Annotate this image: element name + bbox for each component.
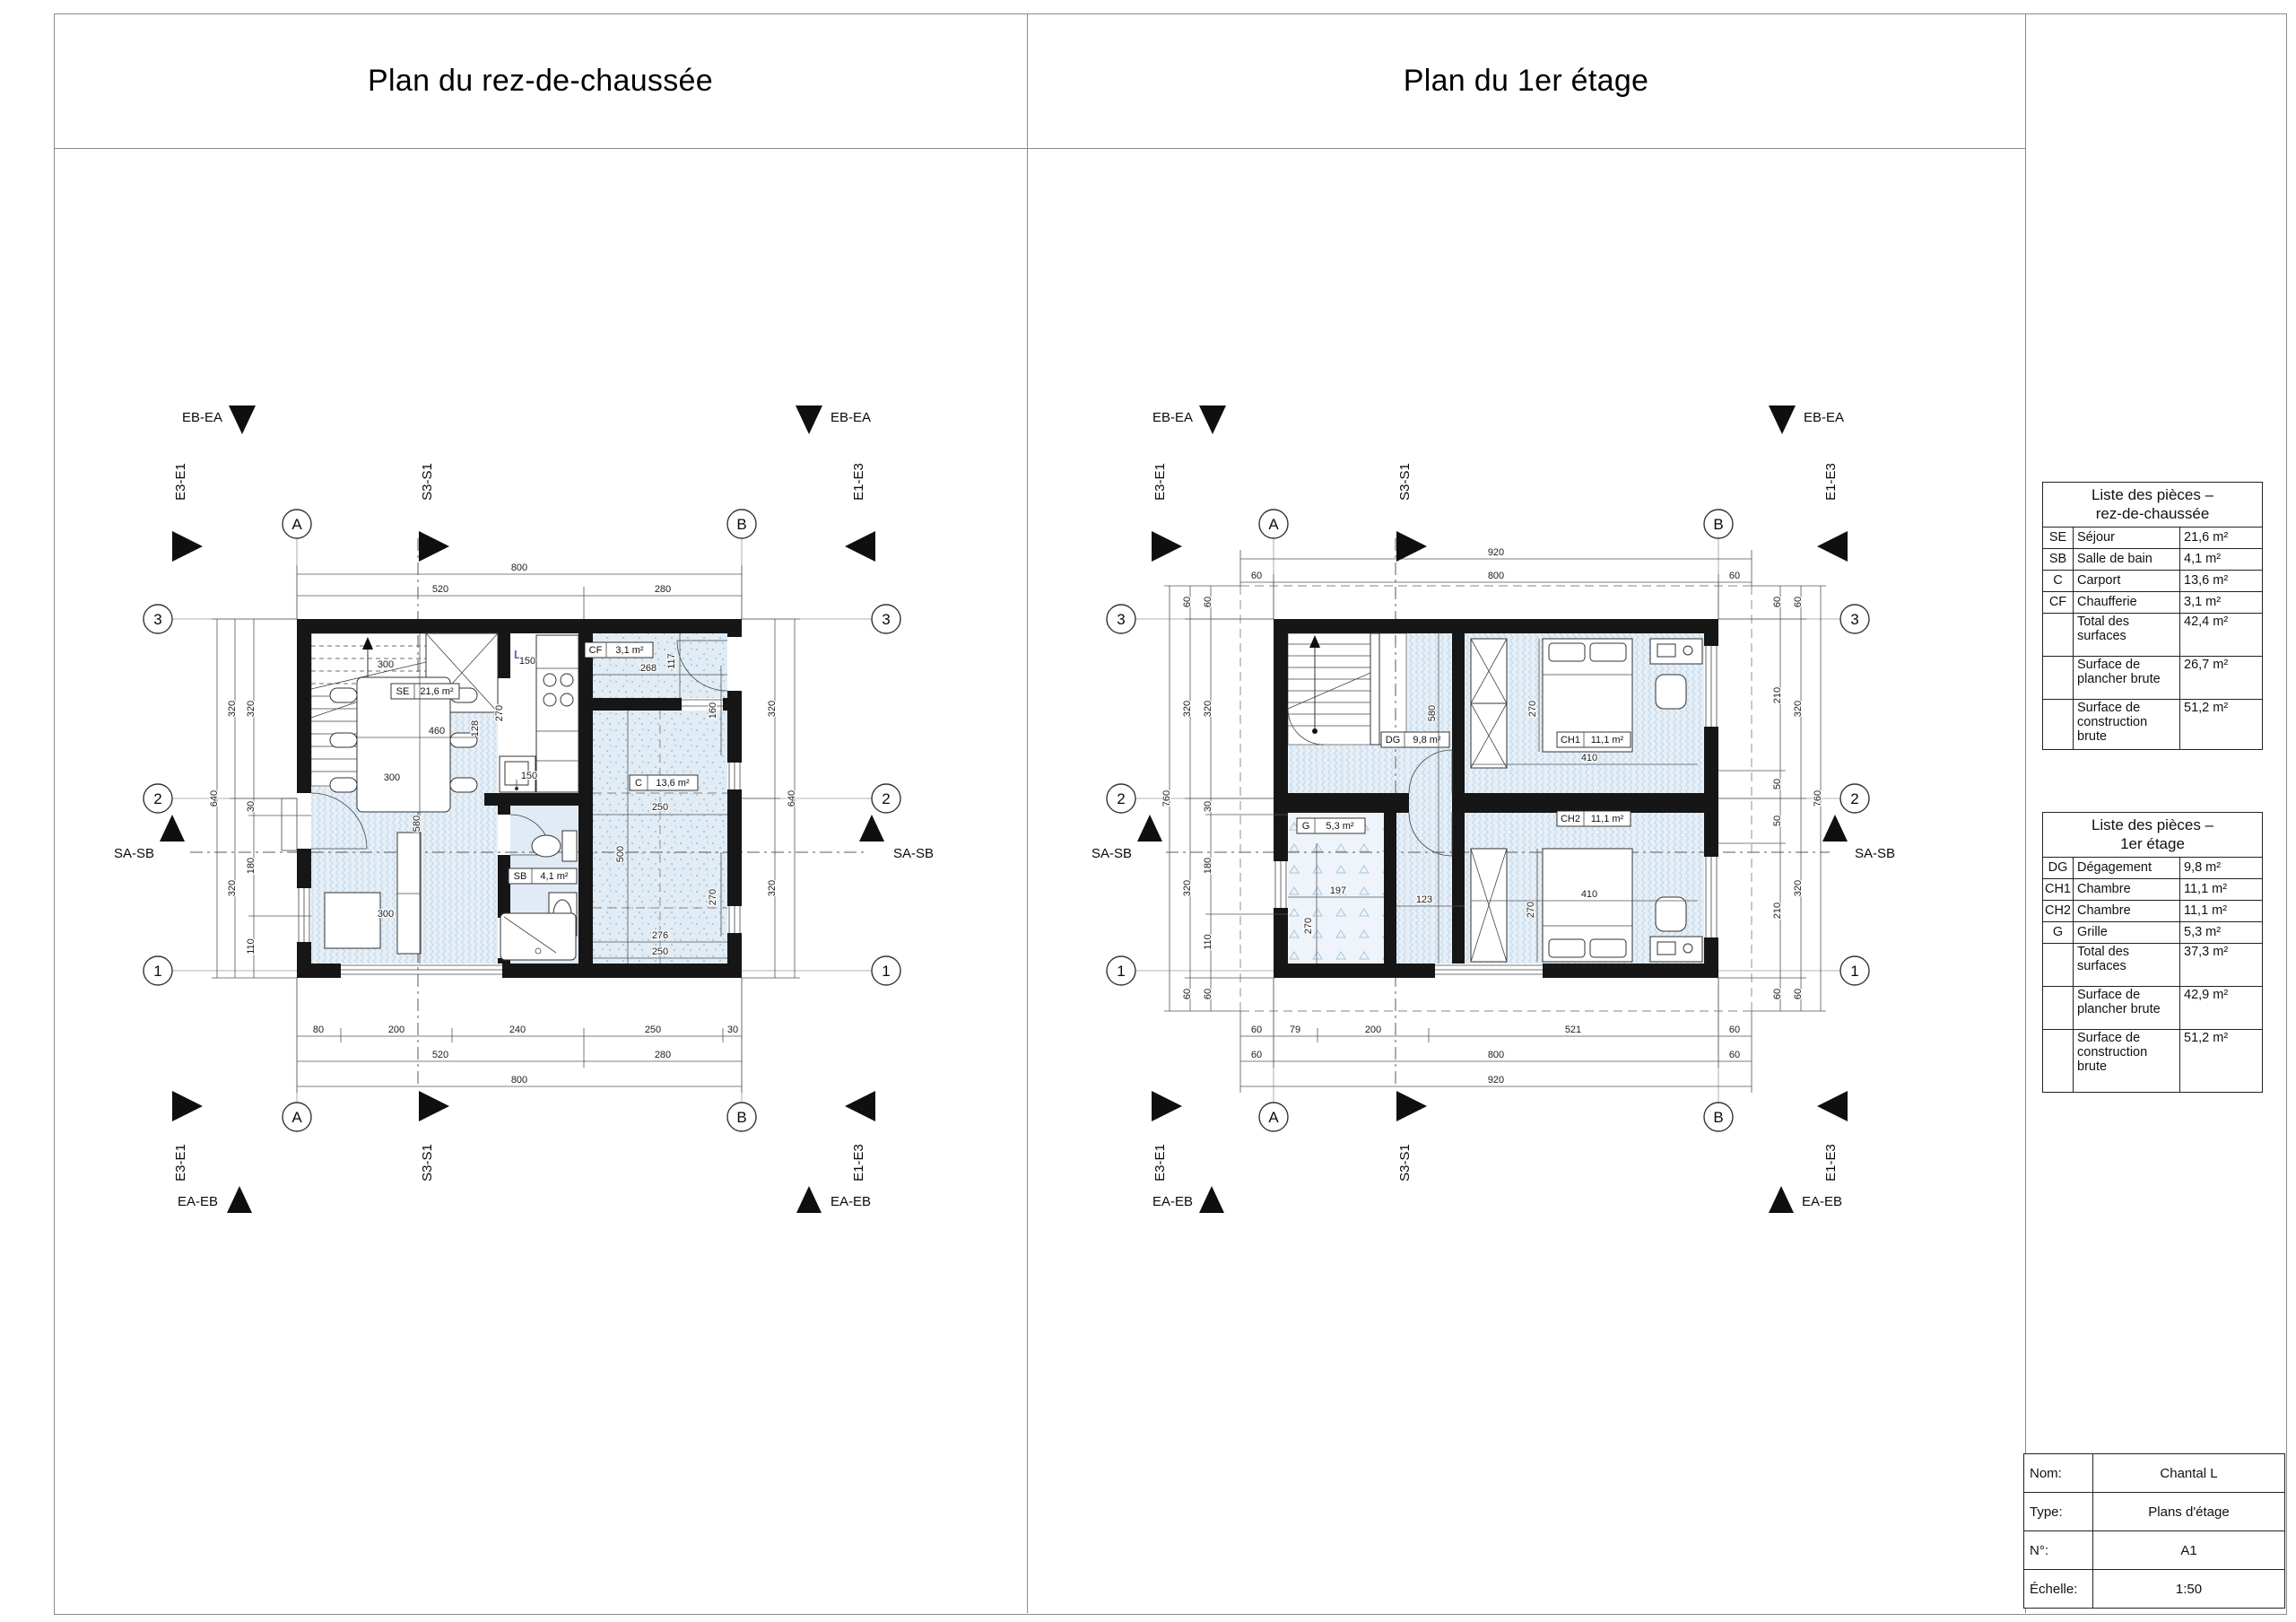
svg-text:410: 410: [1581, 889, 1597, 900]
svg-text:460: 460: [429, 726, 445, 737]
grid-bubble-2-left: 2: [1107, 784, 1135, 813]
grid-bubble-1-right: 1: [1840, 956, 1869, 985]
svg-text:S3-S1: S3-S1: [1397, 1144, 1413, 1182]
svg-text:CF: CF: [589, 645, 603, 656]
svg-text:250: 250: [652, 802, 668, 813]
svg-text:240: 240: [509, 1025, 526, 1035]
section-triangle-icon: [227, 1186, 252, 1213]
room-label-dg: DG 9,8 m²: [1381, 732, 1449, 747]
grid-bubble-1-right: 1: [872, 956, 900, 985]
svg-text:520: 520: [432, 1050, 448, 1060]
table-row: CH1Chambre11,1 m²: [2043, 878, 2263, 900]
svg-text:79: 79: [1290, 1025, 1300, 1035]
table-row: Total des surfaces42,4 m²: [2043, 613, 2263, 656]
svg-text:B: B: [1713, 516, 1723, 533]
table-row: SBSalle de bain4,1 m²: [2043, 548, 2263, 570]
svg-text:5,3 m²: 5,3 m²: [1326, 821, 1354, 832]
svg-text:270: 270: [1527, 701, 1538, 717]
svg-text:EA-EB: EA-EB: [831, 1194, 871, 1209]
grid-bubble-b-bottom: B: [727, 1103, 756, 1131]
grid-bubble-b-top: B: [727, 510, 756, 538]
svg-text:80: 80: [313, 1025, 324, 1035]
table-row: GGrille5,3 m²: [2043, 921, 2263, 943]
section-triangle-icon: [229, 405, 256, 434]
svg-text:250: 250: [645, 1025, 661, 1035]
section-triangle-icon: [1199, 405, 1226, 434]
svg-text:60: 60: [1251, 571, 1262, 581]
svg-text:1: 1: [1117, 963, 1125, 980]
table-row: Surface de plancher brute42,9 m²: [2043, 986, 2263, 1029]
svg-text:210: 210: [1772, 687, 1783, 703]
svg-text:EB-EA: EB-EA: [182, 410, 222, 425]
section-triangle-icon: [172, 531, 203, 562]
svg-text:21,6 m²: 21,6 m²: [420, 686, 454, 697]
svg-text:3: 3: [882, 611, 890, 628]
svg-text:C: C: [635, 778, 642, 789]
svg-text:S3-S1: S3-S1: [420, 1144, 435, 1182]
grid-bubble-3-right: 3: [872, 605, 900, 633]
svg-text:60: 60: [1251, 1050, 1262, 1060]
bathtub-icon: [500, 913, 576, 960]
svg-text:580: 580: [412, 815, 422, 832]
grid-bubble-3-right: 3: [1840, 605, 1869, 633]
svg-text:60: 60: [1251, 1025, 1262, 1035]
section-triangle-icon: [1396, 1091, 1427, 1121]
svg-text:60: 60: [1772, 989, 1783, 999]
svg-text:520: 520: [432, 584, 448, 595]
svg-text:SA-SB: SA-SB: [114, 846, 154, 861]
svg-text:760: 760: [1813, 790, 1823, 807]
svg-text:60: 60: [1772, 597, 1783, 607]
svg-text:9,8 m²: 9,8 m²: [1413, 735, 1441, 746]
svg-text:A: A: [291, 1109, 302, 1126]
svg-text:11,1 m²: 11,1 m²: [1591, 735, 1624, 746]
section-triangle-icon: [1152, 531, 1182, 562]
svg-text:117: 117: [666, 653, 677, 669]
section-triangle-icon: [796, 1186, 822, 1213]
section-triangle-icon: [1769, 1186, 1794, 1213]
svg-text:920: 920: [1488, 547, 1504, 558]
title-block-row: Nom:Chantal L: [2024, 1454, 2285, 1493]
svg-text:250: 250: [652, 946, 668, 957]
svg-text:320: 320: [227, 880, 238, 896]
svg-text:3,1 m²: 3,1 m²: [615, 645, 644, 656]
svg-text:180: 180: [246, 858, 257, 874]
svg-text:320: 320: [246, 701, 257, 717]
sideboard: [397, 833, 421, 954]
svg-text:EB-EA: EB-EA: [1804, 410, 1844, 425]
svg-text:E3-E1: E3-E1: [173, 1144, 188, 1182]
section-triangle-icon: [845, 531, 875, 562]
svg-text:300: 300: [378, 659, 394, 670]
svg-text:1: 1: [882, 963, 890, 980]
table-row: CCarport13,6 m²: [2043, 570, 2263, 591]
svg-text:DG: DG: [1386, 735, 1401, 746]
svg-text:521: 521: [1565, 1025, 1581, 1035]
svg-text:3: 3: [1850, 611, 1858, 628]
floor-plans-canvas: SE 21,6 m² SB 4,1 m² C 13,6 m² CF 3,1 m²: [0, 0, 2296, 1622]
svg-text:2: 2: [1117, 790, 1125, 807]
room-label-c: C 13,6 m²: [630, 775, 698, 790]
svg-text:410: 410: [1581, 753, 1597, 763]
grid-bubble-b-top: B: [1704, 510, 1733, 538]
svg-text:320: 320: [1203, 701, 1213, 717]
svg-text:320: 320: [1182, 880, 1193, 896]
svg-text:2: 2: [153, 790, 161, 807]
svg-text:SE: SE: [396, 686, 410, 697]
svg-text:800: 800: [511, 562, 527, 573]
svg-text:E1-E3: E1-E3: [1823, 463, 1839, 501]
svg-text:EA-EB: EA-EB: [178, 1194, 218, 1209]
table-title: Liste des pièces –rez-de-chaussée: [2043, 483, 2263, 528]
room-label-ch1: CH1 11,1 m²: [1557, 732, 1631, 747]
plan-rdc: SE 21,6 m² SB 4,1 m² C 13,6 m² CF 3,1 m²: [114, 405, 934, 1213]
svg-text:E1-E3: E1-E3: [1823, 1144, 1839, 1182]
svg-text:128: 128: [470, 720, 481, 737]
svg-text:180: 180: [1203, 858, 1213, 874]
bed-ch2: [1543, 849, 1632, 962]
svg-text:60: 60: [1729, 571, 1740, 581]
svg-text:60: 60: [1182, 989, 1193, 999]
section-triangle-icon: [796, 405, 822, 434]
svg-text:800: 800: [1488, 1050, 1504, 1060]
rdc-kitchen: [500, 635, 578, 792]
svg-text:SA-SB: SA-SB: [1855, 846, 1895, 861]
section-triangle-icon: [1199, 1186, 1224, 1213]
title-block-row: Type:Plans d'étage: [2024, 1493, 2285, 1531]
svg-text:E3-E1: E3-E1: [1152, 1144, 1168, 1182]
svg-text:640: 640: [209, 790, 220, 807]
grid-bubble-2-left: 2: [143, 784, 172, 813]
svg-text:30: 30: [1203, 801, 1213, 812]
svg-text:CH2: CH2: [1561, 814, 1580, 824]
svg-text:2: 2: [1850, 790, 1858, 807]
svg-text:A: A: [1268, 1109, 1279, 1126]
svg-text:197: 197: [1330, 885, 1346, 896]
svg-text:EA-EB: EA-EB: [1152, 1194, 1193, 1209]
coffee-table: [325, 893, 380, 948]
svg-text:110: 110: [1203, 934, 1213, 950]
svg-text:268: 268: [640, 663, 657, 674]
svg-text:3: 3: [153, 611, 161, 628]
svg-text:640: 640: [787, 790, 797, 807]
svg-text:E1-E3: E1-E3: [851, 463, 866, 501]
svg-text:60: 60: [1793, 989, 1804, 999]
svg-text:110: 110: [246, 938, 257, 955]
svg-text:320: 320: [1793, 880, 1804, 896]
svg-text:270: 270: [494, 705, 505, 721]
grid-bubble-2-right: 2: [1840, 784, 1869, 813]
title-block-row: N°:A1: [2024, 1531, 2285, 1570]
section-triangle-icon: [1822, 815, 1848, 842]
svg-text:210: 210: [1772, 903, 1783, 919]
svg-text:1: 1: [1850, 963, 1858, 980]
svg-text:B: B: [736, 1109, 746, 1126]
section-triangle-icon: [859, 815, 884, 842]
svg-text:B: B: [736, 516, 746, 533]
svg-text:30: 30: [727, 1025, 738, 1035]
svg-text:270: 270: [1526, 902, 1536, 918]
grid-bubble-1-left: 1: [143, 956, 172, 985]
svg-text:60: 60: [1203, 597, 1213, 607]
room-label-cf: CF 3,1 m²: [585, 642, 653, 658]
svg-text:150: 150: [519, 656, 535, 667]
grid-bubble-3-left: 3: [143, 605, 172, 633]
svg-text:A: A: [1268, 516, 1279, 533]
svg-text:13,6 m²: 13,6 m²: [656, 778, 690, 789]
svg-text:320: 320: [767, 701, 778, 717]
room-label-se: SE 21,6 m²: [391, 684, 459, 699]
svg-text:150: 150: [521, 771, 537, 781]
grid-bubble-3-left: 3: [1107, 605, 1135, 633]
section-triangle-icon: [1137, 815, 1162, 842]
grid-bubble-1-left: 1: [1107, 956, 1135, 985]
svg-text:320: 320: [1793, 701, 1804, 717]
svg-text:A: A: [291, 516, 302, 533]
plan-etage: DG 9,8 m² CH1 11,1 m² CH2 11,1 m² G 5,3 …: [1091, 405, 1895, 1213]
grid-bubble-b-bottom: B: [1704, 1103, 1733, 1131]
svg-text:320: 320: [767, 880, 778, 896]
room-list-table-etage: Liste des pièces –1er étage DGDégagement…: [2042, 812, 2263, 1093]
svg-text:300: 300: [384, 772, 400, 783]
svg-text:30: 30: [246, 801, 257, 812]
svg-text:CH1: CH1: [1561, 735, 1580, 746]
svg-text:EB-EA: EB-EA: [1152, 410, 1193, 425]
table-row: CH2Chambre11,1 m²: [2043, 900, 2263, 921]
svg-text:E3-E1: E3-E1: [173, 463, 188, 501]
svg-text:320: 320: [1182, 701, 1193, 717]
svg-text:EA-EB: EA-EB: [1802, 1194, 1842, 1209]
room-list-table-rdc: Liste des pièces –rez-de-chaussée SESéjo…: [2042, 482, 2263, 750]
grid-bubble-a-top: A: [283, 510, 311, 538]
table-row: CFChaufferie3,1 m²: [2043, 591, 2263, 613]
svg-text:270: 270: [1303, 918, 1314, 934]
svg-text:280: 280: [655, 1050, 671, 1060]
section-triangle-icon: [845, 1091, 875, 1121]
grid-bubble-2-right: 2: [872, 784, 900, 813]
svg-text:300: 300: [378, 909, 394, 920]
chair-ch1: [1656, 675, 1686, 709]
table-row: Surface de construction brute51,2 m²: [2043, 699, 2263, 749]
svg-text:60: 60: [1182, 597, 1193, 607]
room-label-ch2: CH2 11,1 m²: [1557, 811, 1631, 826]
svg-text:E3-E1: E3-E1: [1152, 463, 1168, 501]
section-triangle-icon: [1817, 1091, 1848, 1121]
svg-text:60: 60: [1729, 1025, 1740, 1035]
chair-ch2: [1656, 897, 1686, 931]
svg-text:123: 123: [1416, 894, 1432, 905]
title-block-row: Échelle:1:50: [2024, 1570, 2285, 1609]
svg-text:SA-SB: SA-SB: [893, 846, 934, 861]
svg-text:580: 580: [1427, 705, 1438, 721]
table-row: DGDégagement9,8 m²: [2043, 857, 2263, 878]
section-triangle-icon: [1817, 531, 1848, 562]
svg-text:SA-SB: SA-SB: [1091, 846, 1132, 861]
svg-text:60: 60: [1793, 597, 1804, 607]
svg-text:800: 800: [1488, 571, 1504, 581]
svg-text:60: 60: [1729, 1050, 1740, 1060]
svg-text:60: 60: [1203, 989, 1213, 999]
section-triangle-icon: [419, 1091, 449, 1121]
svg-text:2: 2: [882, 790, 890, 807]
svg-text:160: 160: [708, 702, 718, 719]
svg-text:SB: SB: [514, 871, 527, 882]
table-row: Total des surfaces37,3 m²: [2043, 943, 2263, 986]
svg-text:276: 276: [652, 930, 668, 941]
table-row: SESéjour21,6 m²: [2043, 527, 2263, 548]
section-triangle-icon: [1769, 405, 1796, 434]
svg-text:S3-S1: S3-S1: [1397, 463, 1413, 501]
svg-text:800: 800: [511, 1075, 527, 1086]
svg-text:11,1 m²: 11,1 m²: [1591, 814, 1624, 824]
svg-text:50: 50: [1772, 815, 1783, 826]
grid-bubble-a-bottom: A: [1259, 1103, 1288, 1131]
title-block: Nom:Chantal L Type:Plans d'étage N°:A1 É…: [2023, 1453, 2285, 1609]
table-title: Liste des pièces –1er étage: [2043, 813, 2263, 858]
section-triangle-icon: [1396, 531, 1427, 562]
stair-floor: [1288, 633, 1406, 745]
svg-text:760: 760: [1161, 790, 1172, 807]
grid-bubble-a-bottom: A: [283, 1103, 311, 1131]
svg-text:500: 500: [615, 846, 626, 862]
svg-text:EB-EA: EB-EA: [831, 410, 871, 425]
svg-text:200: 200: [1365, 1025, 1381, 1035]
svg-text:B: B: [1713, 1109, 1723, 1126]
svg-text:E1-E3: E1-E3: [851, 1144, 866, 1182]
svg-text:50: 50: [1772, 779, 1783, 789]
svg-text:270: 270: [708, 889, 718, 905]
svg-text:S3-S1: S3-S1: [420, 463, 435, 501]
svg-text:200: 200: [388, 1025, 404, 1035]
grid-bubble-a-top: A: [1259, 510, 1288, 538]
section-triangle-icon: [419, 531, 449, 562]
svg-text:3: 3: [1117, 611, 1125, 628]
table-row: Surface de plancher brute26,7 m²: [2043, 656, 2263, 699]
section-triangle-icon: [160, 815, 185, 842]
svg-text:G: G: [1302, 821, 1310, 832]
svg-text:1: 1: [153, 963, 161, 980]
table-row: Surface de construction brute51,2 m²: [2043, 1029, 2263, 1092]
svg-text:320: 320: [227, 701, 238, 717]
room-label-g: G 5,3 m²: [1297, 818, 1365, 833]
svg-text:920: 920: [1488, 1075, 1504, 1086]
section-triangle-icon: [172, 1091, 203, 1121]
room-label-sb: SB 4,1 m²: [509, 868, 577, 884]
svg-text:4,1 m²: 4,1 m²: [540, 871, 569, 882]
section-triangle-icon: [1152, 1091, 1182, 1121]
drawing-sheet: Plan du rez-de-chaussée Plan du 1er étag…: [0, 0, 2296, 1622]
svg-text:280: 280: [655, 584, 671, 595]
